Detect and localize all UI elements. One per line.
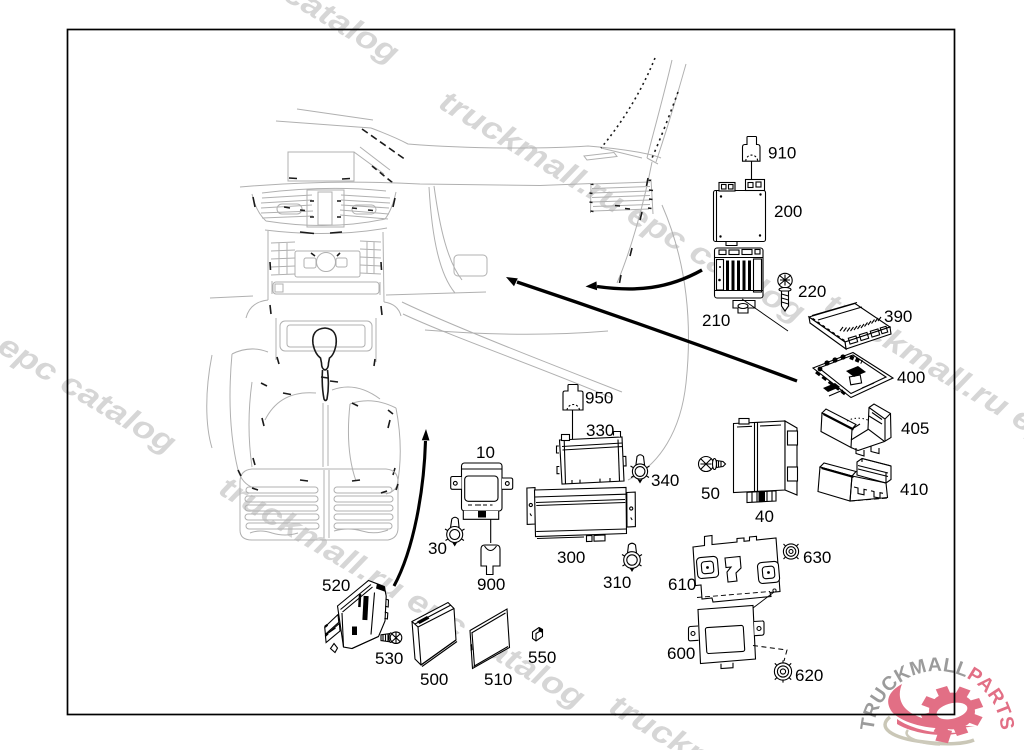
svg-text:500: 500	[420, 670, 448, 689]
svg-text:510: 510	[484, 670, 512, 689]
svg-text:405: 405	[901, 419, 929, 438]
svg-text:400: 400	[897, 368, 925, 387]
svg-text:520: 520	[322, 576, 350, 595]
svg-text:550: 550	[528, 648, 556, 667]
svg-text:330: 330	[586, 421, 614, 440]
svg-text:900: 900	[477, 575, 505, 594]
svg-text:10: 10	[476, 443, 495, 462]
svg-text:30: 30	[428, 539, 447, 558]
svg-text:620: 620	[795, 666, 823, 685]
svg-text:300: 300	[557, 548, 585, 567]
svg-text:530: 530	[375, 649, 403, 668]
svg-text:50: 50	[701, 484, 720, 503]
svg-text:630: 630	[803, 548, 831, 567]
svg-text:390: 390	[884, 307, 912, 326]
svg-text:310: 310	[603, 573, 631, 592]
svg-text:410: 410	[900, 480, 928, 499]
svg-text:910: 910	[768, 144, 796, 163]
svg-text:600: 600	[667, 644, 695, 663]
svg-text:200: 200	[774, 202, 802, 221]
svg-text:340: 340	[651, 471, 679, 490]
svg-text:610: 610	[668, 575, 696, 594]
svg-text:950: 950	[585, 389, 613, 408]
svg-text:220: 220	[798, 282, 826, 301]
svg-text:40: 40	[755, 507, 774, 526]
svg-text:210: 210	[702, 311, 730, 330]
